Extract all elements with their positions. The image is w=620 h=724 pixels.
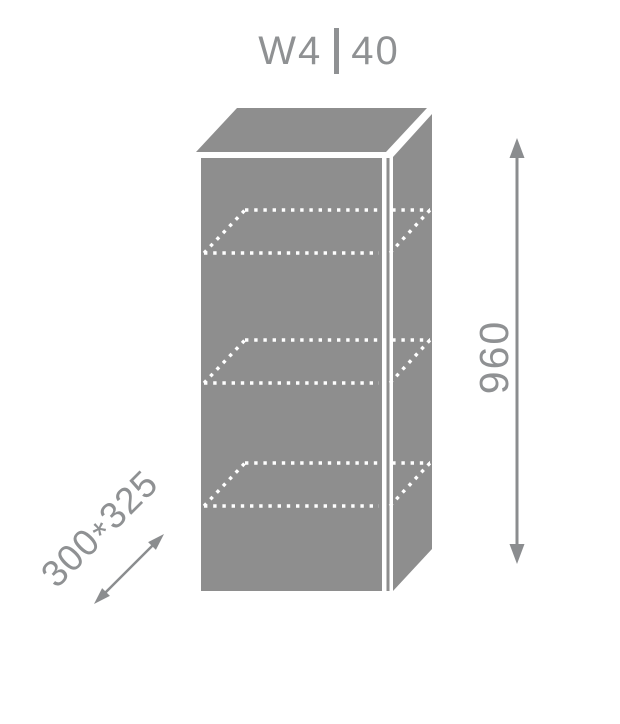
- cabinet-top-face: [196, 108, 427, 152]
- title-divider: [334, 28, 339, 74]
- cabinet-door-front: [201, 158, 382, 591]
- cabinet-spec-figure: W4 40 960 300*325: [0, 0, 620, 724]
- height-dimension-label: 960: [474, 297, 514, 417]
- cabinet-side-panel: [393, 114, 432, 591]
- page-title: W4 40: [0, 27, 620, 75]
- cabinet-front-edge-strip: [387, 158, 390, 591]
- height-arrow-head-bottom: [510, 544, 525, 564]
- page-background: { "colors": { "background": "#ffffff", "…: [0, 0, 620, 724]
- height-arrow-head-top: [510, 138, 525, 158]
- title-size-code: 40: [351, 27, 400, 75]
- title-series-code: W4: [258, 27, 322, 75]
- cabinet-drawing: [0, 0, 620, 724]
